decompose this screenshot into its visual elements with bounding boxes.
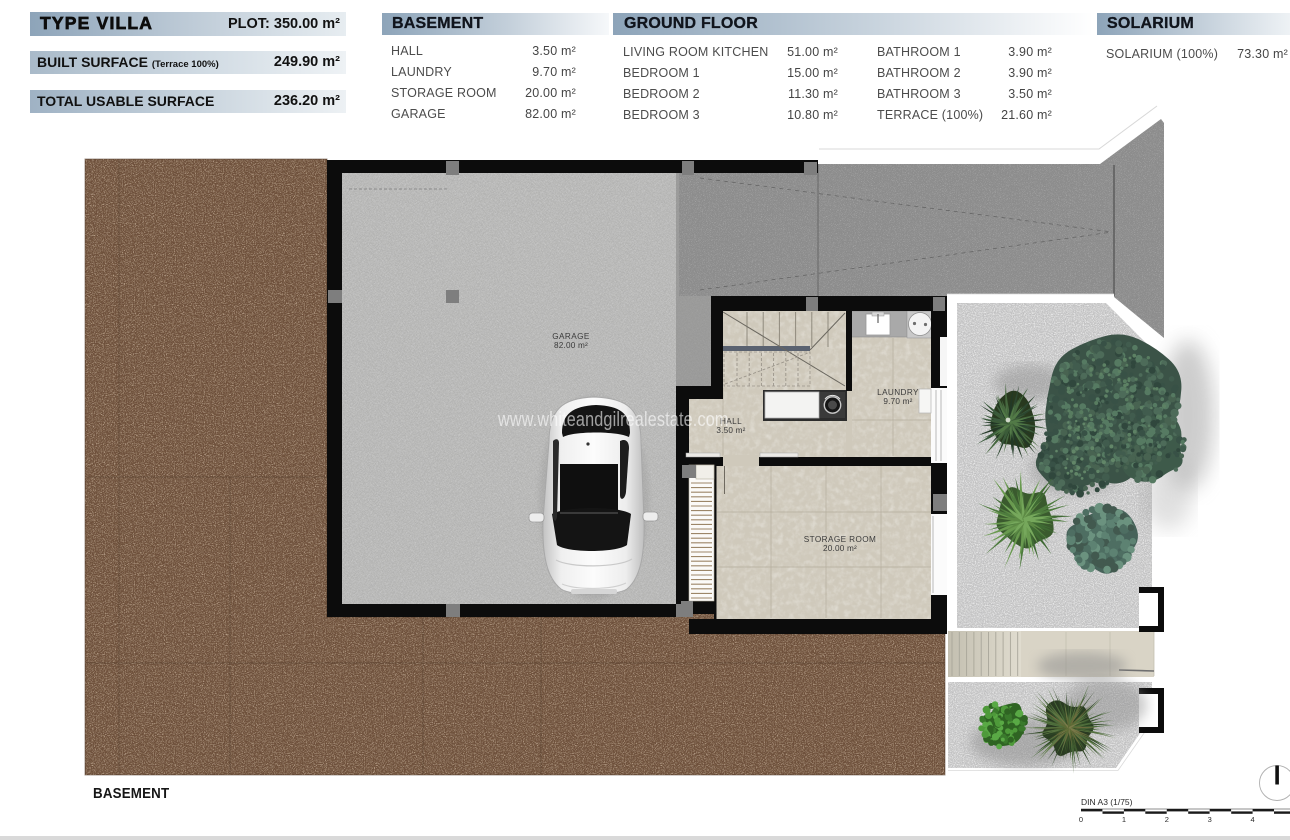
svg-text:82.00 m²: 82.00 m² — [554, 341, 588, 350]
svg-text:DIN A3 (1/75): DIN A3 (1/75) — [1081, 797, 1133, 807]
svg-text:STORAGE ROOM: STORAGE ROOM — [804, 535, 876, 544]
svg-text:9.70 m²: 9.70 m² — [883, 397, 912, 406]
svg-text:LAUNDRY: LAUNDRY — [877, 388, 919, 397]
svg-text:0: 0 — [1079, 815, 1083, 824]
svg-text:2: 2 — [1165, 815, 1169, 824]
svg-text:4: 4 — [1251, 815, 1255, 824]
svg-text:3: 3 — [1208, 815, 1212, 824]
svg-text:GARAGE: GARAGE — [552, 332, 590, 341]
svg-text:1: 1 — [1122, 815, 1126, 824]
svg-text:20.00 m²: 20.00 m² — [823, 544, 857, 553]
